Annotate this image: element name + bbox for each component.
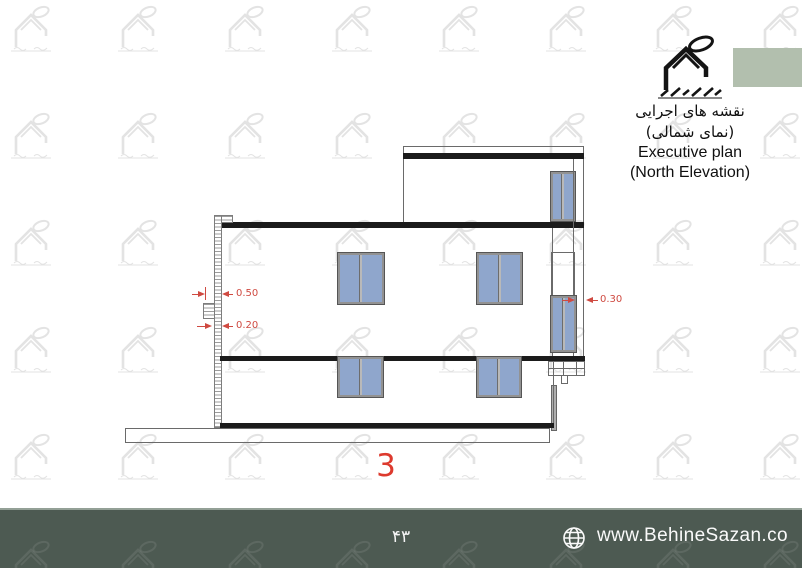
- second-floor-roof-slab: [220, 222, 584, 228]
- right-parapet-divider: [563, 361, 564, 376]
- window: [338, 357, 383, 397]
- dimension-value: 0.20: [236, 320, 258, 331]
- penthouse-roof-slab: [403, 153, 584, 159]
- foundation-slab: [125, 428, 550, 443]
- dimension-line: [592, 300, 598, 301]
- dimension-value: 0.50: [236, 288, 258, 299]
- dimension-line: [228, 326, 233, 327]
- window: [551, 172, 575, 221]
- dimension-value: 0.30: [600, 294, 622, 305]
- globe-icon: [562, 526, 586, 550]
- first-floor-slab: [220, 356, 585, 361]
- sheet-title-english-line1: Executive plan: [602, 143, 778, 163]
- left-wall-section: [214, 215, 222, 428]
- sheet-number: 3: [356, 448, 416, 484]
- dimension-line: [228, 294, 233, 295]
- dimension-arrow-icon: [205, 323, 212, 329]
- dimension-tick: [205, 287, 206, 300]
- window: [477, 357, 521, 397]
- window: [551, 296, 576, 352]
- drawing-sheet-page: نقشه های اجرایی (نمای شمالی) Executive p…: [0, 0, 802, 568]
- right-detail-tab: [561, 375, 568, 384]
- footer-bar: ۴۳ www.BehineSazan.co: [0, 508, 802, 568]
- lower-right-edge-line: [553, 361, 554, 423]
- website-link[interactable]: www.BehineSazan.co: [597, 525, 788, 547]
- right-parapet-divider: [576, 361, 577, 376]
- sheet-title-farsi-line1: نقشه های اجرایی: [602, 101, 778, 122]
- behinesazan-logo-icon: [652, 34, 728, 104]
- dimension-arrow-icon: [198, 291, 205, 297]
- left-wall-ledge: [203, 303, 215, 319]
- right-panel-outline: [551, 252, 575, 298]
- sheet-title-block: نقشه های اجرایی (نمای شمالی) Executive p…: [602, 101, 778, 183]
- sheet-title-english-line2: (North Elevation): [602, 163, 778, 183]
- window: [477, 253, 522, 304]
- window: [338, 253, 384, 304]
- sheet-title-farsi-line2: (نمای شمالی): [602, 122, 778, 143]
- dimension-arrow-icon: [568, 297, 575, 303]
- brand-green-block: [733, 48, 802, 87]
- right-edge-line: [583, 228, 584, 361]
